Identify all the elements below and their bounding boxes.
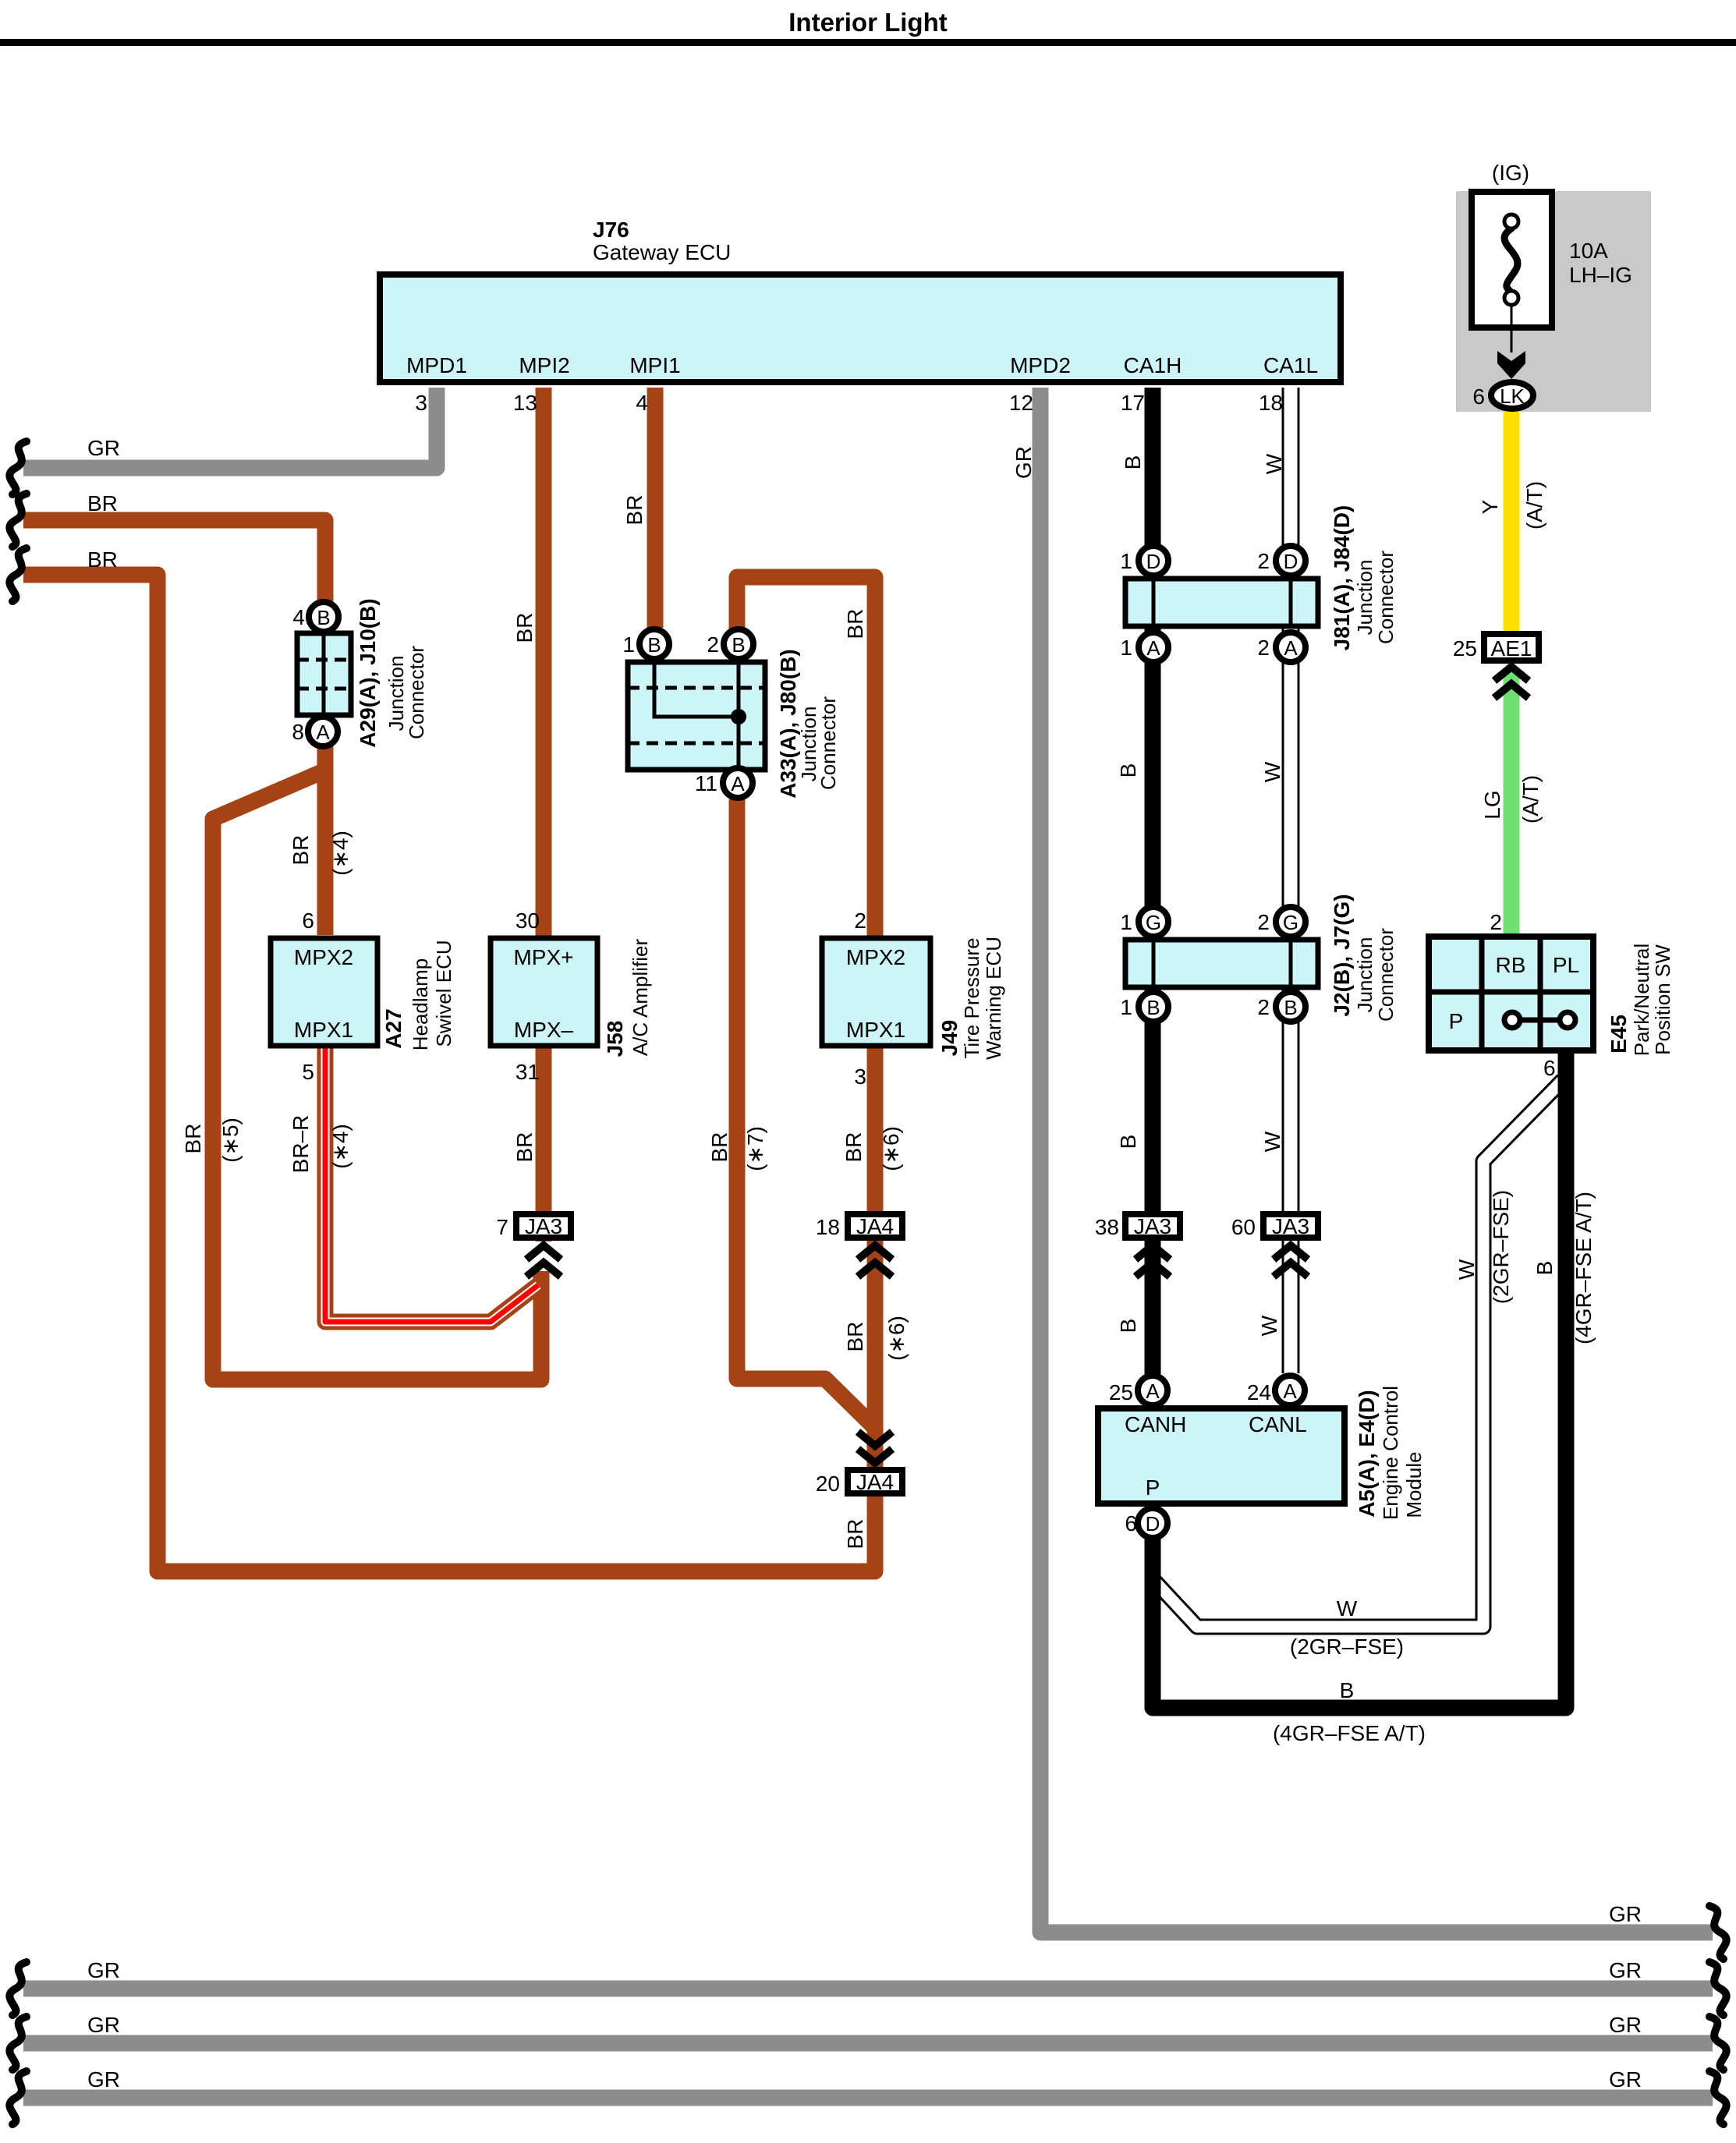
svg-text:BR: BR	[512, 1132, 537, 1163]
svg-text:W: W	[1454, 1259, 1479, 1280]
svg-text:MPX1: MPX1	[846, 1018, 905, 1042]
svg-text:B: B	[1340, 1678, 1355, 1702]
svg-text:(4GR–FSE A/T): (4GR–FSE A/T)	[1571, 1192, 1596, 1344]
svg-text:1: 1	[1120, 549, 1132, 573]
svg-text:(2GR–FSE): (2GR–FSE)	[1290, 1635, 1404, 1659]
svg-text:1: 1	[1120, 910, 1132, 934]
svg-text:BR: BR	[843, 1519, 867, 1550]
svg-text:20: 20	[816, 1472, 840, 1496]
svg-text:B: B	[1116, 1319, 1140, 1334]
svg-text:JA3: JA3	[525, 1214, 562, 1238]
svg-text:Swivel ECU: Swivel ECU	[432, 940, 455, 1047]
svg-text:4: 4	[292, 605, 305, 629]
svg-text:MPI1: MPI1	[629, 353, 680, 377]
svg-text:D: D	[1146, 550, 1161, 573]
svg-text:AE1: AE1	[1491, 636, 1532, 661]
svg-text:(4GR–FSE A/T): (4GR–FSE A/T)	[1273, 1721, 1426, 1745]
svg-text:LH–IG: LH–IG	[1569, 263, 1632, 287]
svg-text:Connector: Connector	[1374, 928, 1398, 1022]
svg-text:11: 11	[695, 771, 717, 795]
svg-text:B: B	[1116, 1135, 1140, 1149]
svg-text:G: G	[1146, 911, 1161, 934]
svg-text:12: 12	[1009, 391, 1033, 415]
svg-text:J49: J49	[937, 1020, 962, 1057]
svg-text:A27: A27	[381, 1008, 406, 1048]
svg-text:GR: GR	[87, 2067, 120, 2092]
svg-text:G: G	[1283, 911, 1298, 934]
svg-text:Position SW: Position SW	[1651, 944, 1674, 1055]
svg-text:B: B	[1532, 1261, 1557, 1276]
svg-text:Junction: Junction	[1353, 937, 1376, 1013]
svg-text:E45: E45	[1607, 1015, 1631, 1054]
svg-text:1: 1	[1120, 995, 1132, 1019]
svg-text:CANL: CANL	[1249, 1412, 1307, 1436]
svg-text:A: A	[1146, 636, 1160, 660]
svg-text:(A/T): (A/T)	[1518, 775, 1543, 824]
svg-text:3: 3	[854, 1064, 866, 1089]
svg-text:RB: RB	[1496, 953, 1526, 977]
svg-text:P: P	[1146, 1475, 1160, 1500]
svg-text:(∗4): (∗4)	[328, 831, 353, 876]
svg-text:A: A	[1283, 1380, 1297, 1403]
svg-text:J2(B), J7(G): J2(B), J7(G)	[1330, 894, 1354, 1016]
svg-text:8: 8	[292, 720, 304, 744]
svg-text:A29(A), J10(B): A29(A), J10(B)	[356, 598, 380, 747]
svg-text:1: 1	[1120, 636, 1132, 660]
svg-text:Engine Control: Engine Control	[1379, 1386, 1402, 1520]
svg-text:BR: BR	[512, 613, 537, 643]
svg-text:(∗7): (∗7)	[743, 1126, 767, 1171]
svg-text:Y: Y	[1478, 499, 1502, 514]
svg-text:MPX+: MPX+	[513, 945, 573, 969]
svg-text:25: 25	[1109, 1380, 1133, 1404]
svg-text:A: A	[1284, 636, 1298, 660]
svg-text:B: B	[1146, 996, 1160, 1019]
svg-text:2: 2	[1257, 549, 1270, 573]
svg-text:A: A	[316, 721, 330, 744]
svg-text:LK: LK	[1500, 384, 1525, 408]
svg-text:JA3: JA3	[1134, 1214, 1171, 1238]
svg-text:6: 6	[302, 909, 314, 933]
svg-text:D: D	[1284, 550, 1298, 573]
svg-text:MPD2: MPD2	[1010, 353, 1071, 377]
svg-text:6: 6	[1472, 384, 1485, 409]
svg-text:38: 38	[1095, 1215, 1119, 1239]
svg-text:GR: GR	[1011, 446, 1036, 479]
svg-text:J58: J58	[603, 1021, 627, 1057]
svg-text:(A/T): (A/T)	[1522, 481, 1546, 530]
svg-text:BR: BR	[181, 1124, 205, 1154]
svg-text:PL: PL	[1553, 953, 1579, 977]
svg-text:Warning ECU: Warning ECU	[982, 937, 1005, 1060]
svg-text:Connector: Connector	[405, 646, 428, 739]
svg-text:BR–R: BR–R	[289, 1115, 313, 1174]
svg-text:BR: BR	[707, 1132, 732, 1163]
svg-text:2: 2	[1257, 636, 1270, 660]
svg-text:3: 3	[415, 391, 427, 415]
svg-text:CANH: CANH	[1125, 1412, 1186, 1436]
svg-text:W: W	[1257, 1315, 1281, 1336]
svg-text:GR: GR	[1609, 2013, 1642, 2037]
svg-text:BR: BR	[87, 547, 118, 572]
svg-text:Park/Neutral: Park/Neutral	[1630, 944, 1653, 1057]
svg-text:2: 2	[1490, 910, 1502, 934]
svg-text:MPX2: MPX2	[846, 945, 905, 969]
svg-text:J76: J76	[593, 218, 629, 242]
svg-text:(∗4): (∗4)	[328, 1124, 353, 1169]
svg-text:GR: GR	[1609, 1958, 1642, 1982]
svg-text:6: 6	[1543, 1056, 1556, 1080]
svg-text:B: B	[1116, 763, 1140, 778]
svg-text:P: P	[1449, 1009, 1464, 1033]
svg-text:13: 13	[513, 391, 537, 415]
svg-text:25: 25	[1453, 636, 1477, 661]
svg-text:A: A	[731, 772, 745, 795]
svg-text:(∗6): (∗6)	[879, 1126, 903, 1171]
svg-text:Connector: Connector	[1374, 551, 1398, 644]
svg-text:2: 2	[854, 909, 866, 933]
svg-text:Interior Light: Interior Light	[788, 8, 947, 37]
svg-text:W: W	[1337, 1596, 1358, 1621]
svg-text:24: 24	[1247, 1380, 1271, 1404]
svg-text:BR: BR	[622, 495, 647, 526]
svg-text:BR: BR	[87, 491, 118, 515]
svg-text:2: 2	[1257, 910, 1270, 934]
svg-text:30: 30	[515, 909, 540, 933]
svg-text:6: 6	[1125, 1511, 1137, 1536]
svg-text:JA4: JA4	[856, 1214, 894, 1238]
svg-text:31: 31	[515, 1060, 540, 1084]
svg-text:10A: 10A	[1569, 239, 1608, 263]
svg-text:W: W	[1260, 761, 1284, 782]
svg-text:W: W	[1262, 453, 1286, 474]
svg-text:1: 1	[622, 632, 635, 657]
svg-text:Junction: Junction	[1353, 560, 1376, 636]
svg-text:B: B	[647, 633, 661, 657]
svg-text:17: 17	[1121, 391, 1145, 415]
svg-text:(2GR–FSE): (2GR–FSE)	[1489, 1190, 1513, 1304]
svg-text:A/C Amplifier: A/C Amplifier	[629, 939, 652, 1057]
svg-text:(∗5): (∗5)	[218, 1118, 243, 1163]
svg-text:MPX1: MPX1	[294, 1018, 353, 1042]
svg-text:B: B	[1121, 455, 1145, 470]
svg-text:BR: BR	[843, 609, 867, 639]
svg-text:BR: BR	[841, 1132, 866, 1163]
svg-text:(∗6): (∗6)	[884, 1316, 909, 1361]
svg-text:A: A	[1146, 1380, 1160, 1403]
svg-text:18: 18	[1259, 391, 1283, 415]
svg-text:2: 2	[707, 632, 719, 657]
svg-text:LG: LG	[1480, 790, 1504, 819]
svg-text:D: D	[1146, 1512, 1160, 1536]
svg-text:CA1H: CA1H	[1124, 353, 1182, 377]
svg-text:4: 4	[636, 391, 648, 415]
svg-text:MPX2: MPX2	[294, 945, 353, 969]
svg-text:MPI2: MPI2	[519, 353, 569, 377]
svg-text:GR: GR	[87, 2013, 120, 2037]
svg-text:18: 18	[816, 1215, 840, 1239]
svg-text:JA3: JA3	[1272, 1214, 1309, 1238]
svg-text:B: B	[317, 606, 330, 629]
svg-text:BR: BR	[843, 1322, 867, 1352]
svg-text:A5(A), E4(D): A5(A), E4(D)	[1355, 1390, 1379, 1517]
svg-text:MPX–: MPX–	[514, 1018, 574, 1042]
svg-text:MPD1: MPD1	[406, 353, 467, 377]
svg-text:GR: GR	[1609, 2067, 1642, 2092]
svg-text:B: B	[1284, 996, 1297, 1019]
svg-text:Tire Pressure: Tire Pressure	[960, 937, 983, 1058]
svg-text:Headlamp: Headlamp	[409, 958, 432, 1051]
svg-text:GR: GR	[87, 436, 120, 460]
svg-text:GR: GR	[87, 1958, 120, 1982]
svg-text:B: B	[732, 633, 745, 657]
svg-text:GR: GR	[1609, 1902, 1642, 1926]
svg-text:Connector: Connector	[817, 696, 840, 790]
svg-text:BR: BR	[289, 835, 313, 866]
svg-text:5: 5	[302, 1060, 314, 1084]
svg-text:J81(A), J84(D): J81(A), J84(D)	[1330, 505, 1354, 651]
svg-text:2: 2	[1257, 995, 1270, 1019]
svg-text:Module: Module	[1402, 1451, 1426, 1518]
svg-text:W: W	[1260, 1131, 1284, 1152]
svg-text:60: 60	[1231, 1215, 1256, 1239]
svg-text:JA4: JA4	[856, 1470, 894, 1494]
svg-text:Gateway ECU: Gateway ECU	[593, 240, 731, 264]
svg-text:CA1L: CA1L	[1263, 353, 1318, 377]
svg-text:(IG): (IG)	[1492, 161, 1529, 185]
svg-text:7: 7	[496, 1215, 508, 1239]
